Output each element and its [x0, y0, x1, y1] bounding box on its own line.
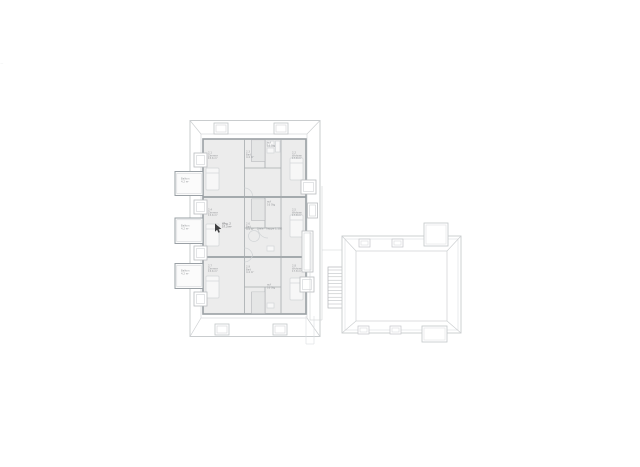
- roof-window-icon: [194, 246, 207, 260]
- loggia: [302, 231, 313, 272]
- unit3-right-room-label: 2.8 Wohnen 17.8 m²: [292, 265, 302, 273]
- annex-roof-outline: [342, 236, 461, 333]
- balcony-2-label: Balkon 4.2 m²: [181, 225, 189, 231]
- unit3-stair-label: auf 16 Stg: [267, 284, 275, 290]
- unit2-hall-label: Diele · Treppe 1:100: [257, 228, 282, 231]
- unit1-stair-label: auf 16 Stg: [267, 142, 275, 148]
- unit2-stair-label: auf 16 Stg: [267, 201, 275, 207]
- floorplan-svg: [0, 0, 640, 467]
- unit1-bath-label: 2.3 Bad 4.4 m²: [246, 151, 254, 159]
- balcony-2: [175, 218, 203, 244]
- balcony-1-label: Balkon 4.2 m²: [181, 178, 189, 184]
- balcony-3: [175, 264, 203, 289]
- unit2-bath-label: 2.6 Bad 4.4 m²: [246, 223, 254, 231]
- roof-window-icon: [300, 277, 314, 292]
- unit3-bath-label: 2.9 Bad 4.4 m²: [246, 266, 254, 274]
- roof-window-icon: [194, 292, 207, 306]
- balcony-3-label: Balkon 4.2 m²: [181, 270, 189, 276]
- dormer-top-right: [274, 123, 288, 134]
- external-stair: [328, 267, 343, 308]
- cursor-tooltip: Whg. 2 57.3 m²: [222, 223, 232, 229]
- unit2-left-room-label: 2.4 Zimmer 15.6 m²: [208, 209, 218, 217]
- annex-chimney-top: [424, 223, 448, 246]
- dormer-top-left: [214, 123, 228, 134]
- unit3-stair: [252, 292, 266, 314]
- unit1-right-room-label: 2.2 Wohnen 17.8 m²: [292, 152, 302, 160]
- roof-window-icon: [194, 200, 207, 214]
- unit2-right-room-label: 2.5 Wohnen 17.8 m²: [292, 209, 302, 217]
- small-window-icon: [308, 203, 318, 218]
- unit1-left-room-label: 2.1 Zimmer 15.6 m²: [208, 152, 218, 160]
- roof-window-icon: [301, 180, 316, 194]
- annex-building: [342, 223, 461, 342]
- dormer-bottom-left: [215, 324, 229, 335]
- unit2-stair: [252, 199, 266, 221]
- drawing-canvas: ·— Balkon 4.2 m² Balkon 4.2 m² Balkon 4.…: [0, 0, 640, 467]
- unit3-left-room-label: 2.7 Zimmer 15.6 m²: [208, 265, 218, 273]
- dormer-bottom-right: [273, 324, 287, 335]
- roof-window-icon: [194, 153, 207, 167]
- edge-artifact: ·—: [0, 63, 3, 66]
- annex-chimney-bottom: [422, 326, 447, 342]
